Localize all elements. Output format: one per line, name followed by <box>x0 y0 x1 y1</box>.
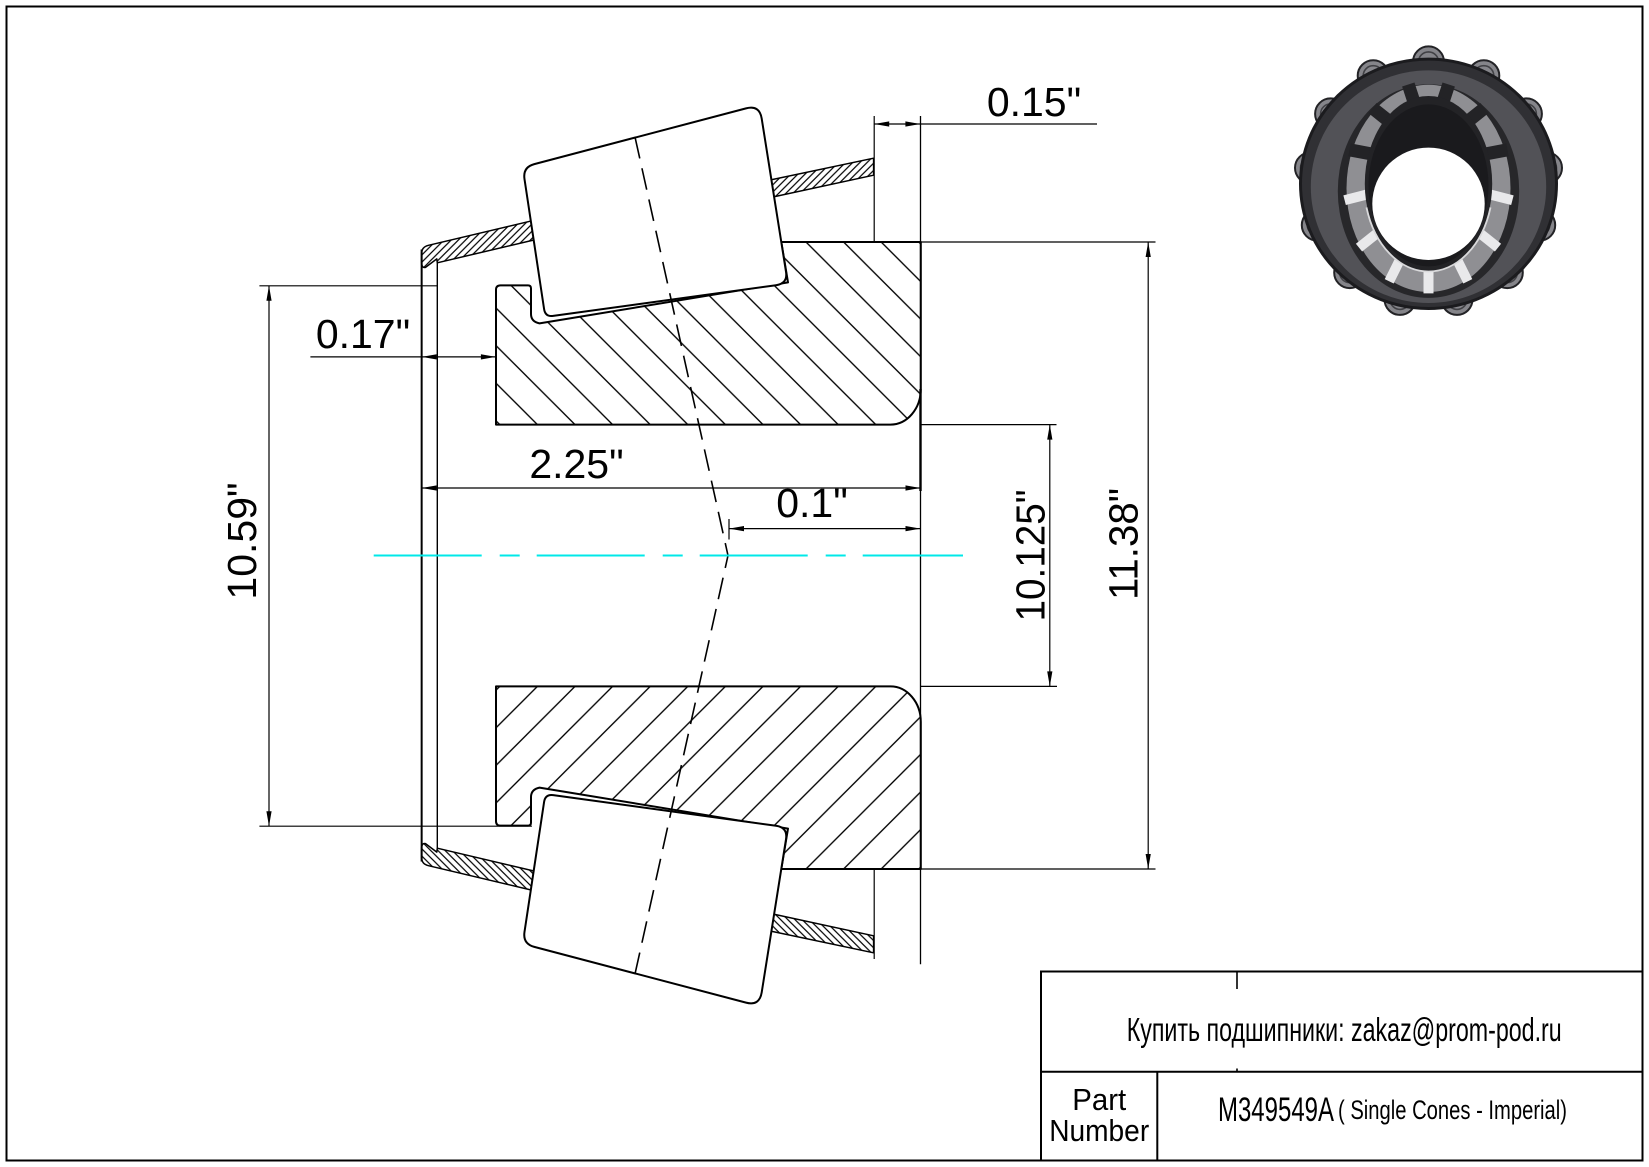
svg-text:Part: Part <box>1072 1082 1126 1117</box>
svg-text:10.125": 10.125" <box>1008 490 1054 622</box>
svg-text:0.17": 0.17" <box>316 311 410 357</box>
svg-text:10.59": 10.59" <box>219 482 265 599</box>
svg-text:2.25": 2.25" <box>529 441 623 487</box>
svg-text:M349549A: M349549A <box>1218 1091 1334 1129</box>
svg-text:Number: Number <box>1049 1113 1149 1148</box>
svg-text:0.15": 0.15" <box>987 79 1081 125</box>
svg-text:( Single Cones - Imperial): ( Single Cones - Imperial) <box>1338 1095 1567 1125</box>
svg-text:11.38": 11.38" <box>1101 488 1147 600</box>
svg-text:0.1": 0.1" <box>776 480 848 526</box>
svg-text:Купить подшипники: zakaz@prom-: Купить подшипники: zakaz@prom-pod.ru <box>1127 1011 1562 1048</box>
